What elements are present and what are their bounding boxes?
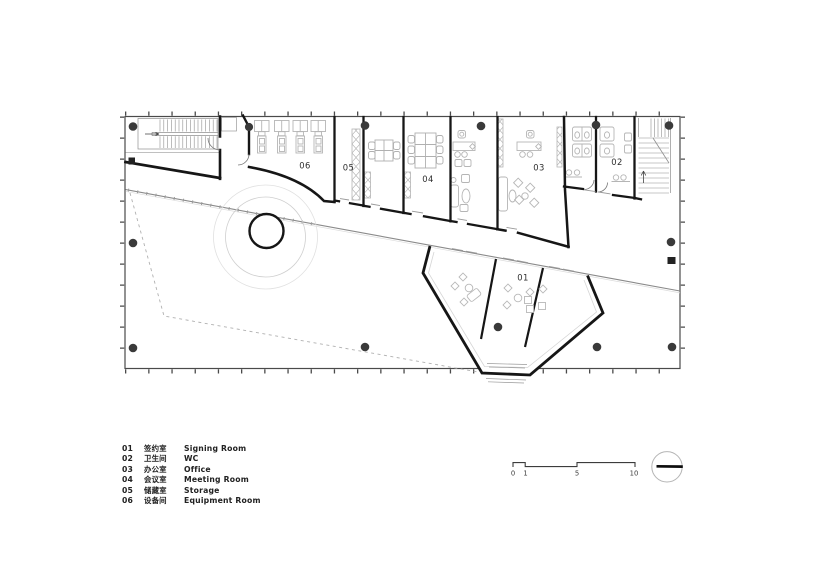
furniture-office-a xyxy=(451,131,476,212)
toilet-pair xyxy=(600,144,614,157)
toilet-pair xyxy=(600,127,614,141)
legend-row: 02卫生间WC xyxy=(122,453,261,463)
furniture-meeting-room xyxy=(408,133,443,168)
legend-row: 01签约室Signing Room xyxy=(122,443,261,453)
door-arc xyxy=(584,180,594,190)
legend: 01签约室Signing Room 02卫生间WC 03办公室Office 04… xyxy=(122,443,261,506)
legend-en: Signing Room xyxy=(184,444,246,453)
walls xyxy=(126,116,642,248)
scale-tick-10: 10 xyxy=(630,470,639,478)
legend-zh: 会议室 xyxy=(144,474,184,485)
door-arc xyxy=(238,154,249,165)
stair-treads-side xyxy=(639,138,670,193)
scale-tick-5: 5 xyxy=(575,470,579,478)
legend-row: 05储藏室Storage xyxy=(122,485,261,495)
legend-en: WC xyxy=(184,454,199,463)
legend-num: 03 xyxy=(122,465,144,474)
wall-room06-curve xyxy=(249,167,335,202)
urinal xyxy=(625,133,632,141)
wall-stub xyxy=(129,158,136,165)
north-indicator xyxy=(652,452,683,482)
room-01-signing xyxy=(423,246,603,383)
wall-bottom-wc1 xyxy=(564,187,583,190)
vestibule xyxy=(222,118,237,132)
wall-bottom-05 xyxy=(335,201,364,206)
legend-zh: 签约室 xyxy=(144,443,184,454)
legend-num: 06 xyxy=(122,496,144,505)
scale-tick-0: 0 xyxy=(511,470,515,478)
legend-num: 02 xyxy=(122,454,144,463)
wall-bottom-office xyxy=(451,221,498,229)
wall-diagonal-left xyxy=(126,162,221,178)
wc-fixtures xyxy=(566,127,632,182)
scale-tick-1: 1 xyxy=(523,470,527,478)
wall-bottom-03 xyxy=(498,229,569,247)
room-01-floor xyxy=(423,248,603,376)
legend-zh: 储藏室 xyxy=(144,485,184,496)
wall-stub xyxy=(668,257,676,264)
wall-bottom-02 xyxy=(613,195,635,198)
legend-en: Meeting Room xyxy=(184,475,249,484)
wall-room06-left xyxy=(243,116,249,155)
legend-num: 05 xyxy=(122,486,144,495)
room-label-06: 06 xyxy=(299,161,310,171)
dashed-boundary-line xyxy=(130,193,478,372)
legend-num: 01 xyxy=(122,444,144,453)
legend-zh: 办公室 xyxy=(144,464,184,475)
stair-treads-upper xyxy=(160,120,217,132)
equipment-racks xyxy=(255,121,326,154)
floor-plan-page: 06 05 04 03 02 01 0 1 5 10 01签约室Signing … xyxy=(0,0,818,578)
legend-en: Office xyxy=(184,465,211,474)
staircase-right xyxy=(639,118,671,193)
scale-bar: 0 1 5 10 xyxy=(511,463,638,478)
wall-bottom-04 xyxy=(404,213,451,221)
urinal xyxy=(625,145,632,153)
sinks xyxy=(566,170,631,182)
room-label-03: 03 xyxy=(533,163,544,173)
door-arc xyxy=(598,183,608,193)
legend-zh: 设备间 xyxy=(144,495,184,506)
legend-zh: 卫生间 xyxy=(144,453,184,464)
room-label-02: 02 xyxy=(611,157,622,167)
room-label-05: 05 xyxy=(343,163,354,173)
room-label-04: 04 xyxy=(422,174,433,184)
legend-num: 04 xyxy=(122,475,144,484)
legend-en: Equipment Room xyxy=(184,496,261,505)
furniture-small-meeting xyxy=(369,140,401,161)
round-column-hall xyxy=(214,185,318,289)
legend-en: Storage xyxy=(184,486,220,495)
wall-bottom-meeting xyxy=(364,206,404,213)
legend-row: 03办公室Office xyxy=(122,464,261,474)
legend-row: 06设备间Equipment Room xyxy=(122,495,261,505)
toilet-pair xyxy=(573,144,592,157)
toilet-pair xyxy=(573,127,592,141)
room-label-01: 01 xyxy=(517,273,528,283)
legend-row: 04会议室Meeting Room xyxy=(122,474,261,484)
divider-03-wc xyxy=(564,117,569,247)
